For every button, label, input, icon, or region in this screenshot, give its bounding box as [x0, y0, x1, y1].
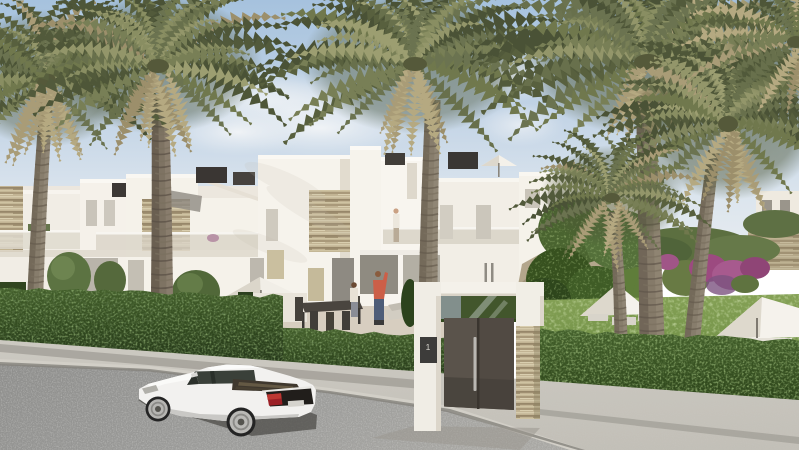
svg-text:1: 1 — [426, 342, 431, 352]
